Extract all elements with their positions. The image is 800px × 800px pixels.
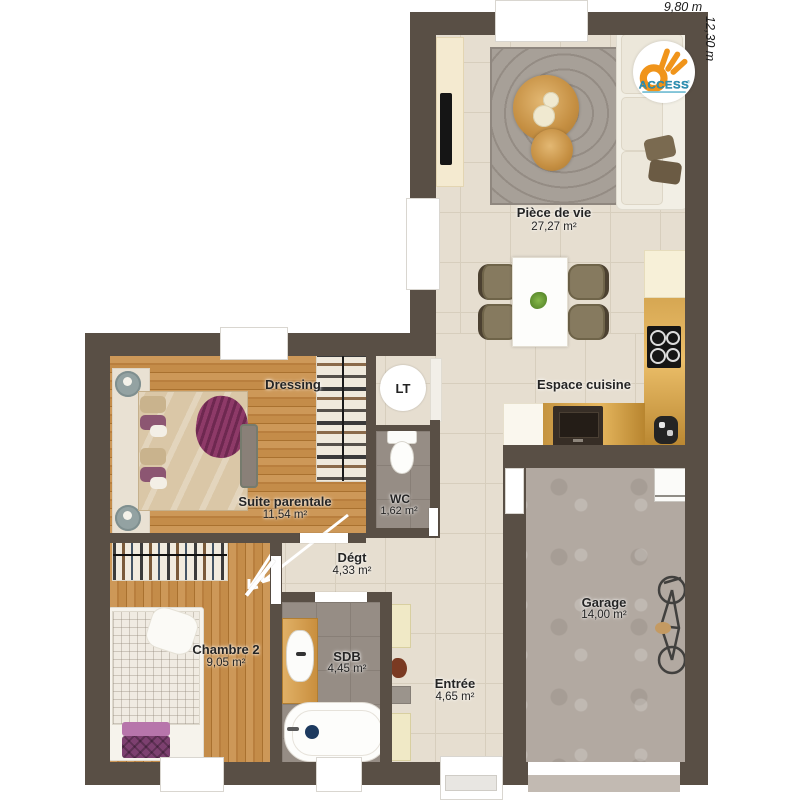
area-label-garage: 14,00 m² — [581, 609, 626, 621]
area-label-entree: 4,65 m² — [436, 691, 475, 703]
room-label-suite-parentale: Suite parentale — [238, 494, 331, 509]
room-label-wc: WC — [390, 492, 410, 506]
room-label-dressing: Dressing — [265, 377, 321, 392]
dressing-wardrobe — [316, 352, 370, 482]
access-logo-registered: ® — [687, 78, 691, 84]
access-logo-text: ACCESS — [639, 80, 689, 92]
entree-cabinet — [389, 604, 411, 648]
suite-door-leaf — [300, 533, 348, 543]
area-label-suite-parentale: 11,54 m² — [263, 509, 308, 521]
sofa-pillow — [648, 159, 683, 185]
window-sdb-bottom — [316, 757, 362, 792]
oven — [553, 406, 603, 447]
ottoman-chest — [122, 736, 170, 758]
window-suite-top — [220, 327, 288, 360]
area-label-chambre-2: 9,05 m² — [207, 657, 246, 669]
kitchen-cabinet-top — [644, 250, 687, 298]
wc-door-leaf — [429, 508, 438, 536]
lt-side-cabinet — [430, 358, 442, 422]
wall-lt-wc-divider — [376, 425, 430, 431]
tv-screen — [440, 93, 452, 165]
room-label-lt: LT — [396, 381, 411, 396]
cooktop-burner — [666, 348, 680, 362]
ok-hand-icon: ACCESS ® — [633, 41, 695, 103]
room-label-piece-de-vie: Pièce de vie — [517, 205, 591, 220]
wall-living-left — [410, 12, 436, 356]
cooktop-burner — [650, 348, 666, 364]
cooktop — [647, 326, 681, 368]
bed-pillow — [150, 477, 167, 489]
floor-plan: LT ACCESS ® Pièce de vie 27,27 m² Espace… — [0, 0, 800, 800]
bed-pillow — [140, 448, 166, 465]
window-living-left — [406, 198, 440, 290]
area-label-sdb: 4,45 m² — [328, 663, 367, 675]
cooktop-burner — [666, 331, 680, 345]
wall-garage-top — [503, 445, 708, 468]
garage-side-door — [505, 468, 524, 514]
room-label-entree: Entrée — [435, 676, 475, 691]
dimension-width: 9,80 m — [664, 0, 702, 14]
wall-wc-left — [366, 356, 376, 538]
toilet — [390, 441, 414, 474]
wall-left — [85, 333, 110, 785]
ottoman-chest — [122, 722, 170, 736]
entree-cabinet — [389, 713, 411, 761]
room-label-chambre-2: Chambre 2 — [192, 642, 259, 657]
lt-appliance-circle: LT — [380, 365, 426, 411]
room-label-espace-cuisine: Espace cuisine — [537, 377, 631, 392]
closet-rail — [112, 541, 228, 581]
area-label-piece-de-vie: 27,27 m² — [531, 221, 576, 233]
sofa-pillow — [643, 134, 677, 162]
window-top-bay — [495, 0, 588, 42]
cooktop-burner — [650, 330, 666, 346]
room-label-garage: Garage — [582, 595, 627, 610]
wall-right — [685, 12, 708, 785]
bathtub — [284, 702, 388, 762]
bed-pillow — [140, 396, 166, 413]
front-door — [440, 756, 503, 800]
garage-door-apron — [528, 775, 680, 792]
garage-door-opening — [528, 762, 680, 775]
area-label-degt: 4,33 m² — [333, 565, 372, 577]
room-label-sdb: SDB — [333, 649, 360, 664]
room-label-degt: Dégt — [338, 550, 367, 565]
wall-sdb-right — [380, 592, 392, 762]
area-label-wc: 1,62 m² — [380, 505, 417, 517]
dining-chair — [568, 304, 609, 340]
dimension-height: 12,30 m — [703, 16, 717, 61]
table-plate-large — [533, 105, 555, 127]
kitchen-sink — [654, 416, 678, 444]
bed-bench — [240, 424, 258, 488]
kitchen-cabinet-bottom-white — [503, 403, 545, 450]
sdb-basin — [286, 630, 314, 682]
window-chambre2-bottom — [160, 757, 224, 792]
doormat — [391, 686, 411, 704]
dining-chair — [568, 264, 609, 300]
coffee-table-small — [531, 129, 573, 171]
coat-rack — [391, 658, 407, 678]
bed-pillow — [150, 425, 167, 437]
access-logo: ACCESS ® — [633, 41, 695, 103]
sdb-door-leaf — [315, 592, 367, 602]
